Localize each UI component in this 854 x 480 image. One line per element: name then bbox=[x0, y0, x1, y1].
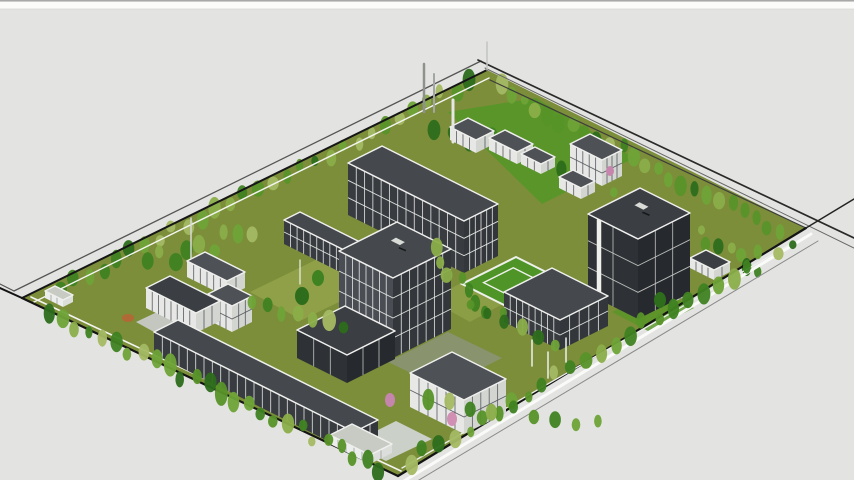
tree bbox=[417, 440, 427, 456]
tree bbox=[713, 277, 724, 295]
tree bbox=[428, 120, 441, 140]
tree bbox=[467, 300, 475, 310]
tree bbox=[729, 195, 738, 211]
tree bbox=[85, 269, 94, 285]
tree bbox=[701, 186, 711, 205]
tree bbox=[654, 162, 663, 174]
tree bbox=[431, 238, 443, 257]
tree bbox=[656, 313, 664, 325]
tree bbox=[741, 203, 750, 218]
tree bbox=[698, 225, 705, 234]
tree bbox=[268, 415, 278, 427]
tree bbox=[486, 404, 497, 421]
tree bbox=[674, 176, 686, 197]
tree bbox=[664, 172, 673, 187]
tree bbox=[753, 210, 761, 225]
tree bbox=[436, 256, 444, 269]
tree bbox=[123, 348, 132, 361]
tree bbox=[754, 245, 763, 260]
tree bbox=[552, 115, 565, 134]
tree bbox=[762, 221, 772, 235]
tree bbox=[139, 344, 150, 361]
viewport bbox=[0, 0, 854, 480]
tree bbox=[549, 365, 558, 379]
tree bbox=[611, 337, 621, 354]
tree bbox=[594, 415, 602, 428]
tree bbox=[152, 349, 163, 368]
tree bbox=[441, 268, 453, 283]
tree bbox=[405, 455, 418, 475]
tree bbox=[483, 308, 491, 319]
tree bbox=[299, 420, 308, 432]
tree bbox=[169, 253, 183, 271]
tree bbox=[164, 353, 177, 376]
tree bbox=[465, 402, 476, 417]
dark-tree-1 bbox=[295, 287, 309, 305]
tree bbox=[69, 322, 79, 338]
orange-tree bbox=[122, 314, 134, 322]
tree bbox=[308, 437, 315, 447]
tree bbox=[422, 389, 434, 411]
tree bbox=[110, 332, 122, 353]
pink-tree-3 bbox=[606, 166, 614, 176]
tree bbox=[255, 408, 265, 421]
tree bbox=[509, 401, 518, 414]
tree bbox=[244, 396, 255, 411]
tree bbox=[348, 451, 357, 466]
tree bbox=[789, 240, 796, 249]
tree bbox=[713, 192, 725, 209]
tree bbox=[636, 312, 645, 328]
tree bbox=[537, 378, 547, 393]
pink-tree-1 bbox=[385, 393, 395, 407]
tree bbox=[499, 315, 509, 329]
dark-tree-3 bbox=[654, 292, 666, 308]
campus-render-canvas bbox=[0, 0, 854, 480]
tree bbox=[444, 393, 454, 410]
pink-tree-2 bbox=[447, 412, 457, 426]
tree bbox=[193, 235, 205, 254]
tree bbox=[197, 210, 209, 230]
tree bbox=[551, 340, 560, 352]
tree bbox=[728, 268, 741, 290]
tree bbox=[293, 306, 304, 322]
tree bbox=[322, 310, 336, 331]
tree bbox=[263, 298, 273, 313]
tree bbox=[247, 226, 258, 242]
tree bbox=[596, 344, 607, 363]
tree bbox=[98, 330, 107, 347]
tree bbox=[175, 371, 184, 387]
tree bbox=[529, 410, 539, 425]
tree bbox=[517, 318, 528, 335]
tree bbox=[432, 435, 444, 452]
tree bbox=[44, 304, 55, 324]
tree bbox=[324, 434, 333, 446]
tree bbox=[282, 414, 294, 434]
tree bbox=[277, 306, 285, 321]
tree bbox=[228, 392, 240, 413]
tree bbox=[267, 177, 278, 191]
tree bbox=[525, 391, 532, 402]
tree bbox=[743, 260, 751, 274]
tree bbox=[155, 245, 163, 258]
tree bbox=[338, 439, 346, 453]
tree bbox=[204, 373, 216, 393]
tree bbox=[580, 352, 593, 369]
tree bbox=[356, 138, 364, 151]
tree bbox=[220, 224, 228, 239]
tree bbox=[624, 326, 637, 346]
tree bbox=[465, 283, 473, 298]
tree bbox=[776, 224, 785, 240]
tree bbox=[449, 430, 461, 448]
tree bbox=[682, 292, 693, 308]
tree bbox=[690, 181, 698, 196]
tree bbox=[233, 224, 244, 243]
tree bbox=[549, 411, 561, 428]
tree bbox=[610, 187, 617, 197]
tree bbox=[697, 283, 710, 304]
tree bbox=[639, 159, 650, 174]
tree bbox=[668, 299, 679, 320]
tree bbox=[215, 382, 228, 406]
tree bbox=[142, 252, 154, 269]
tree bbox=[728, 243, 736, 254]
tree bbox=[572, 418, 581, 431]
tree bbox=[362, 450, 373, 469]
tree bbox=[467, 427, 474, 438]
tree bbox=[773, 247, 783, 260]
tree bbox=[57, 309, 70, 328]
tree bbox=[459, 272, 466, 284]
tree bbox=[532, 330, 544, 345]
tree bbox=[248, 295, 257, 309]
tree bbox=[193, 369, 202, 384]
tree bbox=[713, 238, 723, 254]
tree bbox=[339, 322, 349, 334]
tree bbox=[308, 312, 318, 328]
tree bbox=[85, 326, 92, 338]
dark-tree-2 bbox=[312, 270, 324, 286]
tree bbox=[529, 103, 541, 118]
